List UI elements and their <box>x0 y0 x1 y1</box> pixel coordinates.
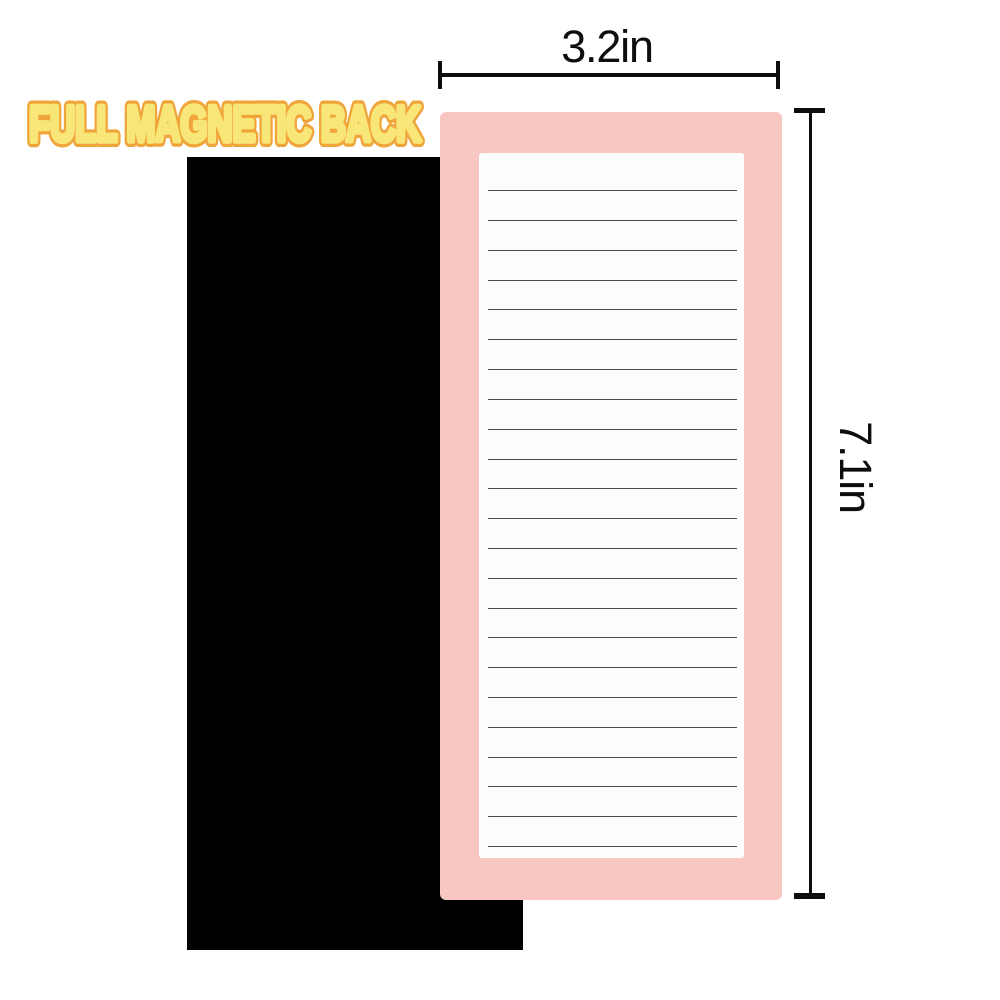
svg-text:FULL MAGNETIC BACK: FULL MAGNETIC BACK <box>29 96 421 152</box>
